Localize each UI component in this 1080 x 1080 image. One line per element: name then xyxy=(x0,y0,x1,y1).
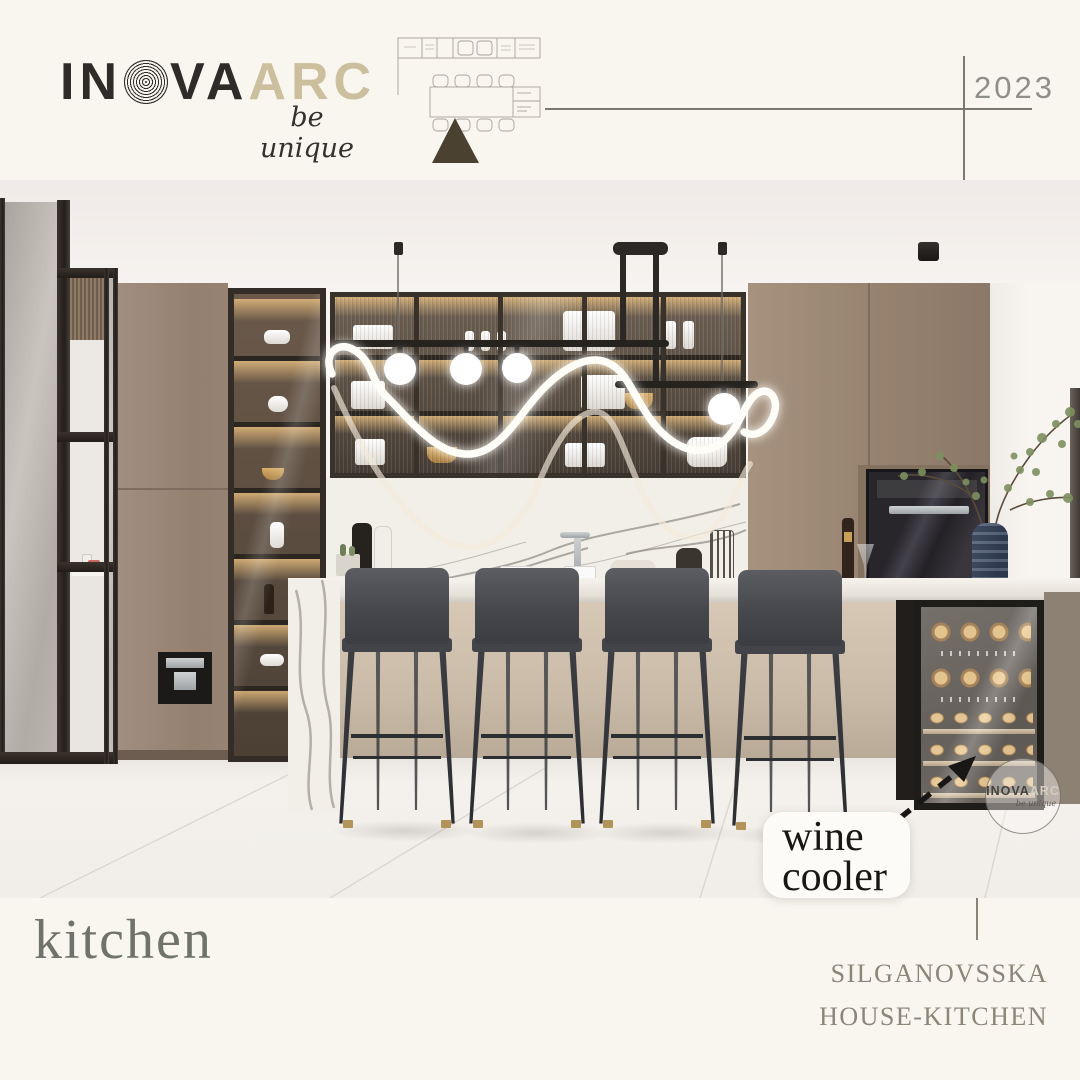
brand-part-in: IN xyxy=(60,52,122,112)
bar-stool xyxy=(605,568,709,830)
stool-leg xyxy=(806,654,812,812)
stool-foot xyxy=(701,820,711,828)
poster-page: INVAARC be unique 2023 xyxy=(0,0,1080,1080)
pendant-lamp xyxy=(0,180,1080,600)
wine-cooler-callout: wine cooler xyxy=(763,812,910,898)
callout-line2: cooler xyxy=(782,858,910,898)
stool-leg xyxy=(413,652,419,810)
kitchen-render xyxy=(0,180,1080,898)
cabinet-kick xyxy=(118,750,228,760)
stool-foot xyxy=(736,822,746,830)
dispenser-spout xyxy=(174,672,196,690)
brand-tagline: be unique xyxy=(246,102,368,164)
glass-globe xyxy=(450,353,482,385)
fingerprint-o-icon xyxy=(124,60,168,104)
stool-crossbar xyxy=(613,756,701,759)
lamp-rod xyxy=(620,255,626,345)
stool-foot xyxy=(473,820,483,828)
project-name: SILGANOVSSKA HOUSE-KITCHEN xyxy=(819,952,1048,1038)
plan-sink xyxy=(458,41,473,55)
stool-leg xyxy=(543,652,549,810)
header-horizontal-rule xyxy=(545,108,1032,110)
water-dispenser xyxy=(158,652,212,704)
arrow-head xyxy=(948,756,976,782)
year-label: 2023 xyxy=(974,70,1055,106)
stool-crossbar xyxy=(353,756,441,759)
bar-stool xyxy=(345,568,449,830)
island-waterfall-leg xyxy=(288,580,340,812)
plan-counter xyxy=(398,38,540,95)
stool-crossbar xyxy=(481,734,573,738)
stool-leg xyxy=(673,652,679,810)
marble-veins xyxy=(288,580,340,812)
plan-dining-table xyxy=(430,75,540,131)
lamp-wire-mount xyxy=(718,242,727,255)
stool-foot xyxy=(441,820,451,828)
watermark-brand-dark: INOVA xyxy=(986,784,1030,798)
lamp-bar xyxy=(615,381,758,388)
watermark-brand: INOVAARC xyxy=(986,784,1060,798)
brand-part-va: VA xyxy=(170,52,248,112)
glass-globe xyxy=(384,353,416,385)
stool-leg xyxy=(375,652,381,810)
stool-crossbar xyxy=(746,758,834,761)
stool-crossbar xyxy=(744,736,836,740)
header-vertical-rule xyxy=(963,56,965,180)
watermark-brand-accent: ARC xyxy=(1030,784,1060,798)
watermark-tagline: be unique xyxy=(1016,799,1056,808)
stool-crossbar xyxy=(483,756,571,759)
stool-leg xyxy=(505,652,511,810)
stool-crossbar xyxy=(611,734,703,738)
plan-sink xyxy=(477,41,492,55)
partition-rail xyxy=(0,752,118,764)
glimpse-lower-cabinet xyxy=(70,576,104,764)
stool-crossbar xyxy=(351,734,443,738)
lamp-bar xyxy=(333,340,669,347)
bar-stool xyxy=(738,570,842,832)
glass-globe xyxy=(708,393,740,425)
project-line2: HOUSE-KITCHEN xyxy=(819,995,1048,1038)
project-line1: SILGANOVSSKA xyxy=(819,952,1048,995)
triangle-marker-icon xyxy=(432,118,479,163)
dispenser-panel xyxy=(166,658,204,668)
lamp-canopy xyxy=(613,242,668,255)
floor-plan-diagram xyxy=(395,33,553,173)
stool-foot xyxy=(603,820,613,828)
bar-stool xyxy=(475,568,579,830)
stool-leg xyxy=(635,652,641,810)
stool-leg xyxy=(768,654,774,812)
stool-foot xyxy=(343,820,353,828)
lamp-wire-mount xyxy=(394,242,403,255)
callout-line1: wine xyxy=(782,818,910,858)
footer-vertical-rule xyxy=(976,898,978,940)
lamp-rod xyxy=(653,255,659,387)
brand-watermark: INOVAARC be unique xyxy=(985,758,1061,834)
glass-globe xyxy=(502,353,532,383)
page-title: kitchen xyxy=(34,908,213,972)
stool-foot xyxy=(571,820,581,828)
